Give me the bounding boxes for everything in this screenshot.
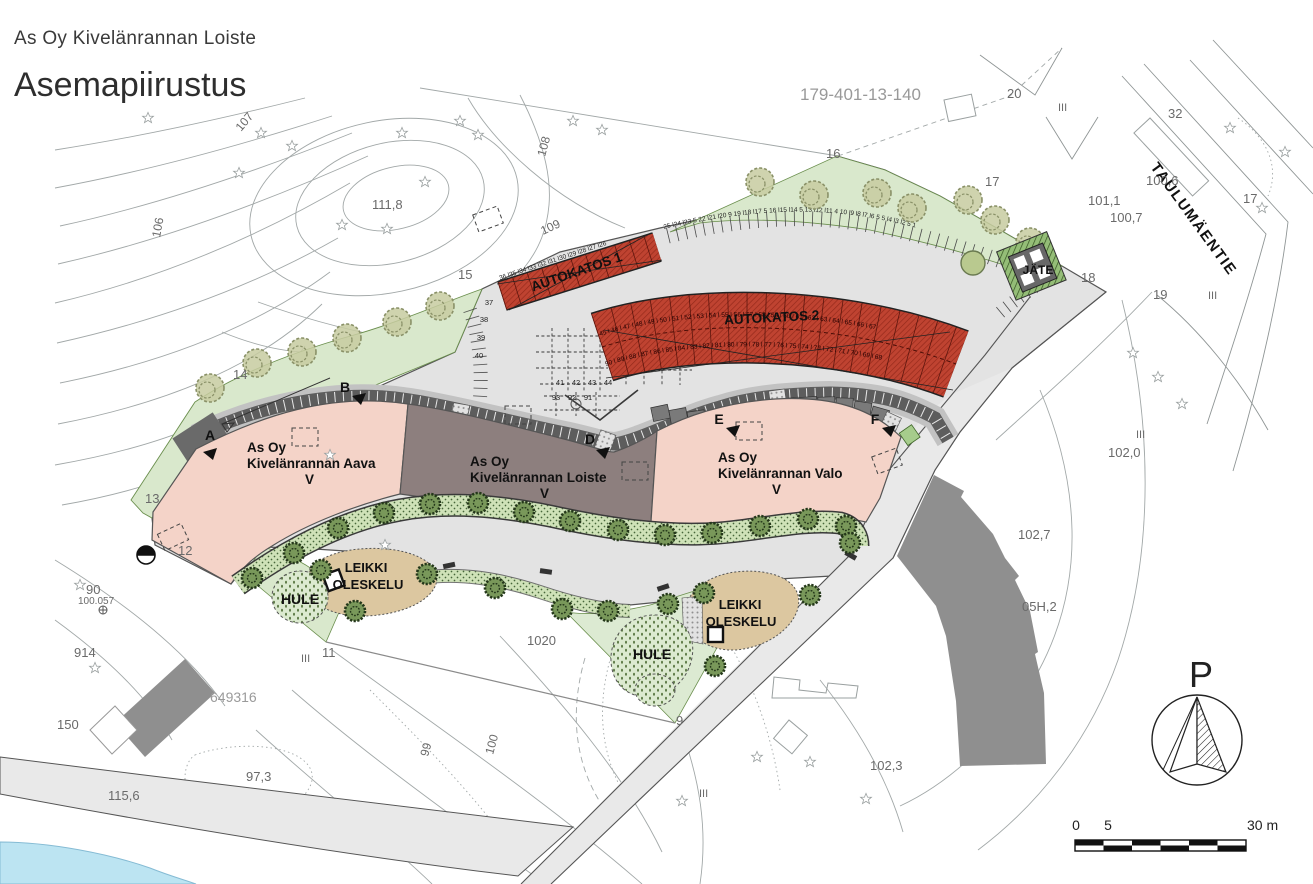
svg-text:Asemapiirustus: Asemapiirustus bbox=[14, 66, 246, 104]
svg-text:5: 5 bbox=[1104, 817, 1112, 833]
svg-text:JÄTE: JÄTE bbox=[1023, 262, 1054, 277]
svg-text:30 m: 30 m bbox=[1247, 817, 1278, 833]
svg-text:V: V bbox=[305, 472, 314, 487]
svg-text:OLESKELU: OLESKELU bbox=[333, 577, 404, 592]
svg-text:97,3: 97,3 bbox=[246, 769, 271, 784]
svg-text:20: 20 bbox=[1007, 86, 1021, 101]
svg-text:38: 38 bbox=[480, 315, 488, 324]
svg-text:HULE: HULE bbox=[281, 591, 319, 607]
svg-text:39: 39 bbox=[477, 333, 485, 342]
svg-text:100,7: 100,7 bbox=[1110, 210, 1143, 225]
svg-text:III: III bbox=[699, 788, 708, 800]
svg-text:12: 12 bbox=[178, 543, 192, 558]
svg-text:179-401-13-140: 179-401-13-140 bbox=[800, 85, 921, 104]
svg-text:102,3: 102,3 bbox=[870, 758, 903, 773]
svg-text:11: 11 bbox=[322, 645, 336, 660]
svg-text:44: 44 bbox=[604, 378, 612, 387]
svg-text:914: 914 bbox=[74, 645, 96, 660]
svg-text:100.057: 100.057 bbox=[78, 596, 115, 607]
svg-text:Kivelänrannan Valo: Kivelänrannan Valo bbox=[718, 466, 843, 481]
svg-text:17: 17 bbox=[985, 174, 999, 189]
svg-text:16: 16 bbox=[826, 146, 840, 161]
svg-text:Kivelänrannan Loiste: Kivelänrannan Loiste bbox=[470, 470, 607, 485]
svg-text:111,8: 111,8 bbox=[372, 197, 403, 212]
svg-text:As Oy: As Oy bbox=[718, 450, 758, 465]
svg-text:F: F bbox=[871, 411, 880, 427]
svg-text:V: V bbox=[772, 482, 781, 497]
svg-text:42: 42 bbox=[572, 378, 580, 387]
svg-text:LEIKKI: LEIKKI bbox=[345, 560, 388, 575]
svg-text:LEIKKI: LEIKKI bbox=[719, 597, 762, 612]
svg-text:15: 15 bbox=[458, 267, 472, 282]
svg-text:102,7: 102,7 bbox=[1018, 527, 1051, 542]
svg-text:III: III bbox=[1208, 290, 1217, 302]
svg-text:100,6: 100,6 bbox=[1146, 173, 1179, 188]
svg-text:91: 91 bbox=[584, 393, 592, 402]
svg-text:37: 37 bbox=[485, 298, 493, 307]
svg-text:OLESKELU: OLESKELU bbox=[706, 614, 777, 629]
svg-text:III: III bbox=[1136, 429, 1145, 441]
svg-text:HULE: HULE bbox=[633, 646, 671, 662]
svg-text:93: 93 bbox=[552, 393, 560, 402]
svg-text:As Oy: As Oy bbox=[247, 440, 287, 455]
svg-text:14: 14 bbox=[233, 367, 247, 382]
svg-text:649316: 649316 bbox=[210, 689, 257, 705]
svg-text:1020: 1020 bbox=[527, 633, 556, 648]
svg-text:32: 32 bbox=[1168, 106, 1182, 121]
svg-text:43: 43 bbox=[588, 378, 596, 387]
svg-text:D: D bbox=[585, 431, 595, 447]
svg-text:0: 0 bbox=[1072, 817, 1080, 833]
svg-text:101,1: 101,1 bbox=[1088, 193, 1121, 208]
svg-text:III: III bbox=[1058, 102, 1067, 114]
svg-text:102,0: 102,0 bbox=[1108, 445, 1141, 460]
svg-text:41: 41 bbox=[556, 378, 564, 387]
svg-text:19: 19 bbox=[1153, 287, 1167, 302]
svg-text:150: 150 bbox=[57, 717, 79, 732]
svg-text:Kivelänrannan Aava: Kivelänrannan Aava bbox=[247, 456, 376, 471]
svg-text:P: P bbox=[1189, 654, 1213, 695]
svg-text:A: A bbox=[205, 427, 215, 443]
svg-text:III: III bbox=[301, 653, 310, 665]
svg-text:115,6: 115,6 bbox=[108, 788, 140, 803]
svg-text:13: 13 bbox=[145, 491, 159, 506]
svg-text:18: 18 bbox=[1081, 270, 1095, 285]
svg-text:9: 9 bbox=[676, 713, 683, 728]
svg-text:40: 40 bbox=[475, 351, 483, 360]
svg-text:E: E bbox=[714, 411, 723, 427]
svg-text:17: 17 bbox=[1243, 191, 1257, 206]
svg-text:As Oy: As Oy bbox=[470, 454, 510, 469]
svg-text:B: B bbox=[340, 379, 350, 395]
svg-text:05H,2: 05H,2 bbox=[1022, 599, 1057, 614]
svg-text:90: 90 bbox=[86, 582, 100, 597]
svg-text:As Oy Kivelänrannan Loiste: As Oy Kivelänrannan Loiste bbox=[14, 28, 256, 49]
svg-text:V: V bbox=[540, 486, 549, 501]
